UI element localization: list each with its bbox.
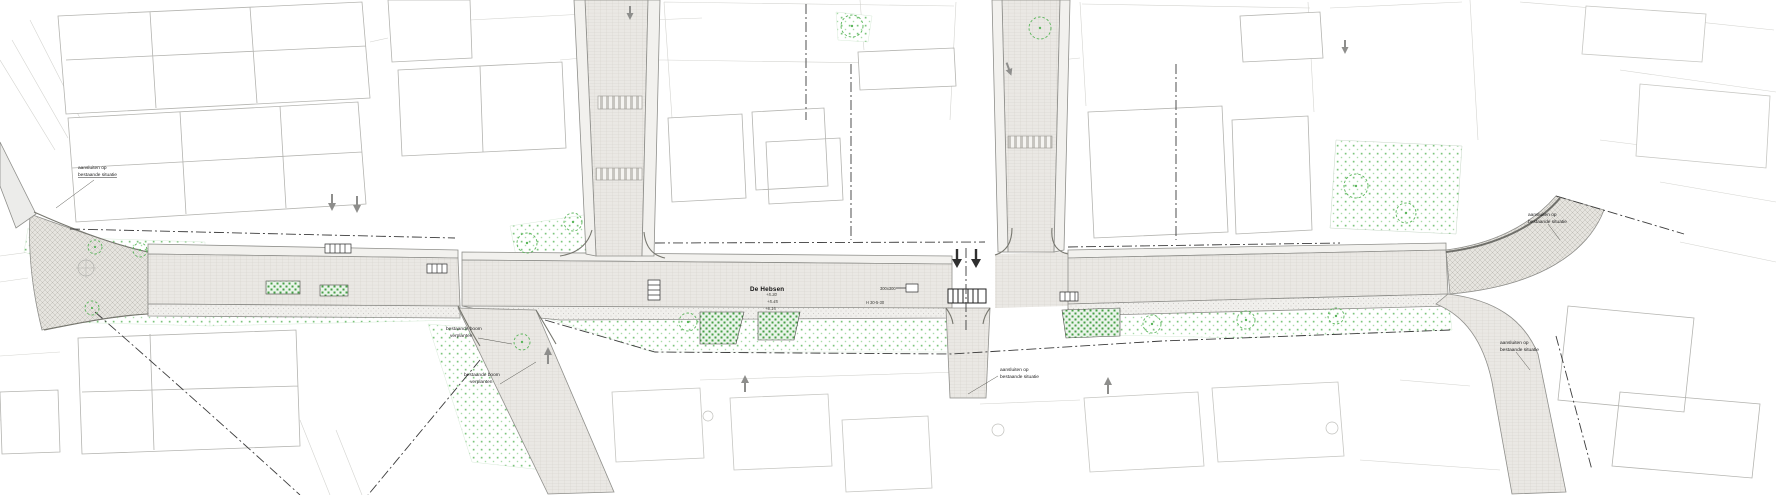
site-plan: De Hebsen aansluiten op bestaande situat… (0, 0, 1776, 495)
crosswalk (596, 168, 642, 180)
green-block-right (1330, 140, 1462, 234)
road-funnel-west (30, 214, 149, 330)
building-block-topcenter (668, 48, 956, 204)
building-block-topmid (388, 0, 566, 156)
building-block-topright (1088, 12, 1323, 238)
side-street-north-2 (1002, 0, 1060, 252)
annotation-line: bestaande situatie (1528, 219, 1567, 225)
annotation-line: bestaande situatie (1000, 374, 1039, 380)
annotation-line: bestaande boom (464, 372, 500, 378)
annotation-line: bestaande boom (446, 326, 482, 332)
annotation-line: aansluiten op (1500, 340, 1529, 346)
building-block-topleft-1 (58, 2, 370, 114)
annotation-line: aansluiten op (1528, 212, 1557, 218)
level-label: +6.15 (765, 306, 776, 311)
spec-label: H 30-5-30 (866, 300, 885, 305)
survey-circle (992, 424, 1004, 436)
road-intersection-2 (995, 252, 1068, 308)
annotation-line: bestaande situatie (78, 172, 117, 178)
level-label: +5.45 (767, 299, 778, 304)
level-label: +5.30 (766, 292, 777, 297)
annotation-line: verplanten (450, 333, 473, 339)
road-band-west (148, 254, 460, 306)
direction-arrow-icon (1104, 377, 1112, 394)
direction-arrow-icon (971, 249, 981, 268)
annotation-line: aansluiten op (78, 165, 107, 171)
building-block-bottomcenter (612, 388, 932, 492)
building-block-bottomleft (0, 330, 300, 454)
paving-detail-speed-table (948, 289, 986, 303)
crosswalk (598, 96, 642, 109)
green-area-street1-west (510, 214, 596, 256)
road-flare-northeast (1446, 196, 1604, 294)
crosswalk (1008, 136, 1052, 148)
sidewalk-south-west (148, 304, 460, 318)
building-block-bottomright (1084, 382, 1344, 472)
annotation-line: bestaande situatie (1500, 347, 1539, 353)
road-flare-southeast (1436, 294, 1566, 494)
site-plan-svg: De Hebsen aansluiten op bestaande situat… (0, 0, 1776, 495)
building-block-southeast (1558, 306, 1760, 478)
spec-label: 300x300 (880, 286, 896, 291)
direction-arrow-icon (952, 249, 962, 268)
direction-arrow-icon (741, 375, 749, 392)
survey-circle (703, 411, 713, 421)
direction-arrow-icon (1342, 40, 1349, 54)
annotation-line: aansluiten op (1000, 367, 1029, 373)
road-branch-northwest (0, 142, 36, 228)
building-block-topleft-2 (68, 102, 366, 222)
annotation-line: verplanten (470, 379, 493, 385)
